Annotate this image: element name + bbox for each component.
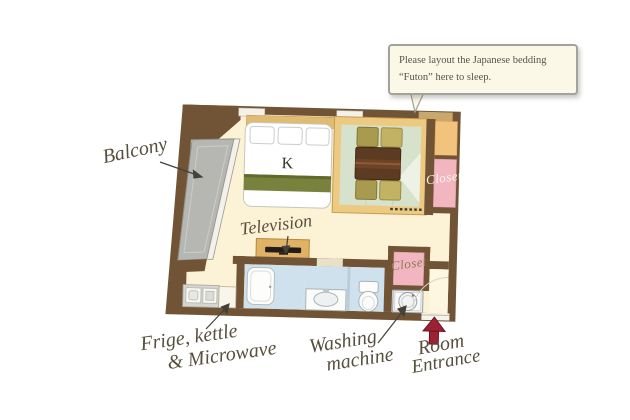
entrance-hall-floor [429, 269, 449, 313]
floor-plan: K [165, 104, 461, 345]
entrance-arrow-shaft [429, 331, 438, 344]
pillow [250, 126, 274, 144]
closet-lower [393, 252, 424, 286]
pillow [306, 128, 329, 146]
cushion [381, 128, 402, 148]
callout-bubble: Please layout the Japanese bedding “Futo… [388, 44, 578, 95]
callout-line1: Please layout the Japanese bedding [399, 52, 567, 69]
service-door-gap [317, 258, 343, 267]
storage-nook [435, 121, 458, 156]
cushion [357, 127, 378, 147]
balcony-bottom-wall [176, 258, 207, 273]
pillow [278, 127, 302, 145]
floor-plan-canvas: K [0, 0, 630, 420]
bed-size-label: K [281, 155, 293, 172]
washbasin-bowl [314, 292, 338, 307]
washbasin-faucet [323, 290, 329, 293]
kitchen-burner [206, 291, 214, 300]
cushion [379, 181, 400, 201]
closet-upper-wall [429, 207, 455, 214]
kitchen-sink-bowl [189, 291, 198, 300]
bathroom-left-wall [236, 256, 245, 308]
bed-pillows [250, 126, 329, 145]
callout-line2: “Futon” here to sleep. [399, 69, 567, 86]
closet-upper [433, 159, 456, 208]
cushion [355, 180, 376, 200]
toilet-bowl [359, 291, 379, 311]
